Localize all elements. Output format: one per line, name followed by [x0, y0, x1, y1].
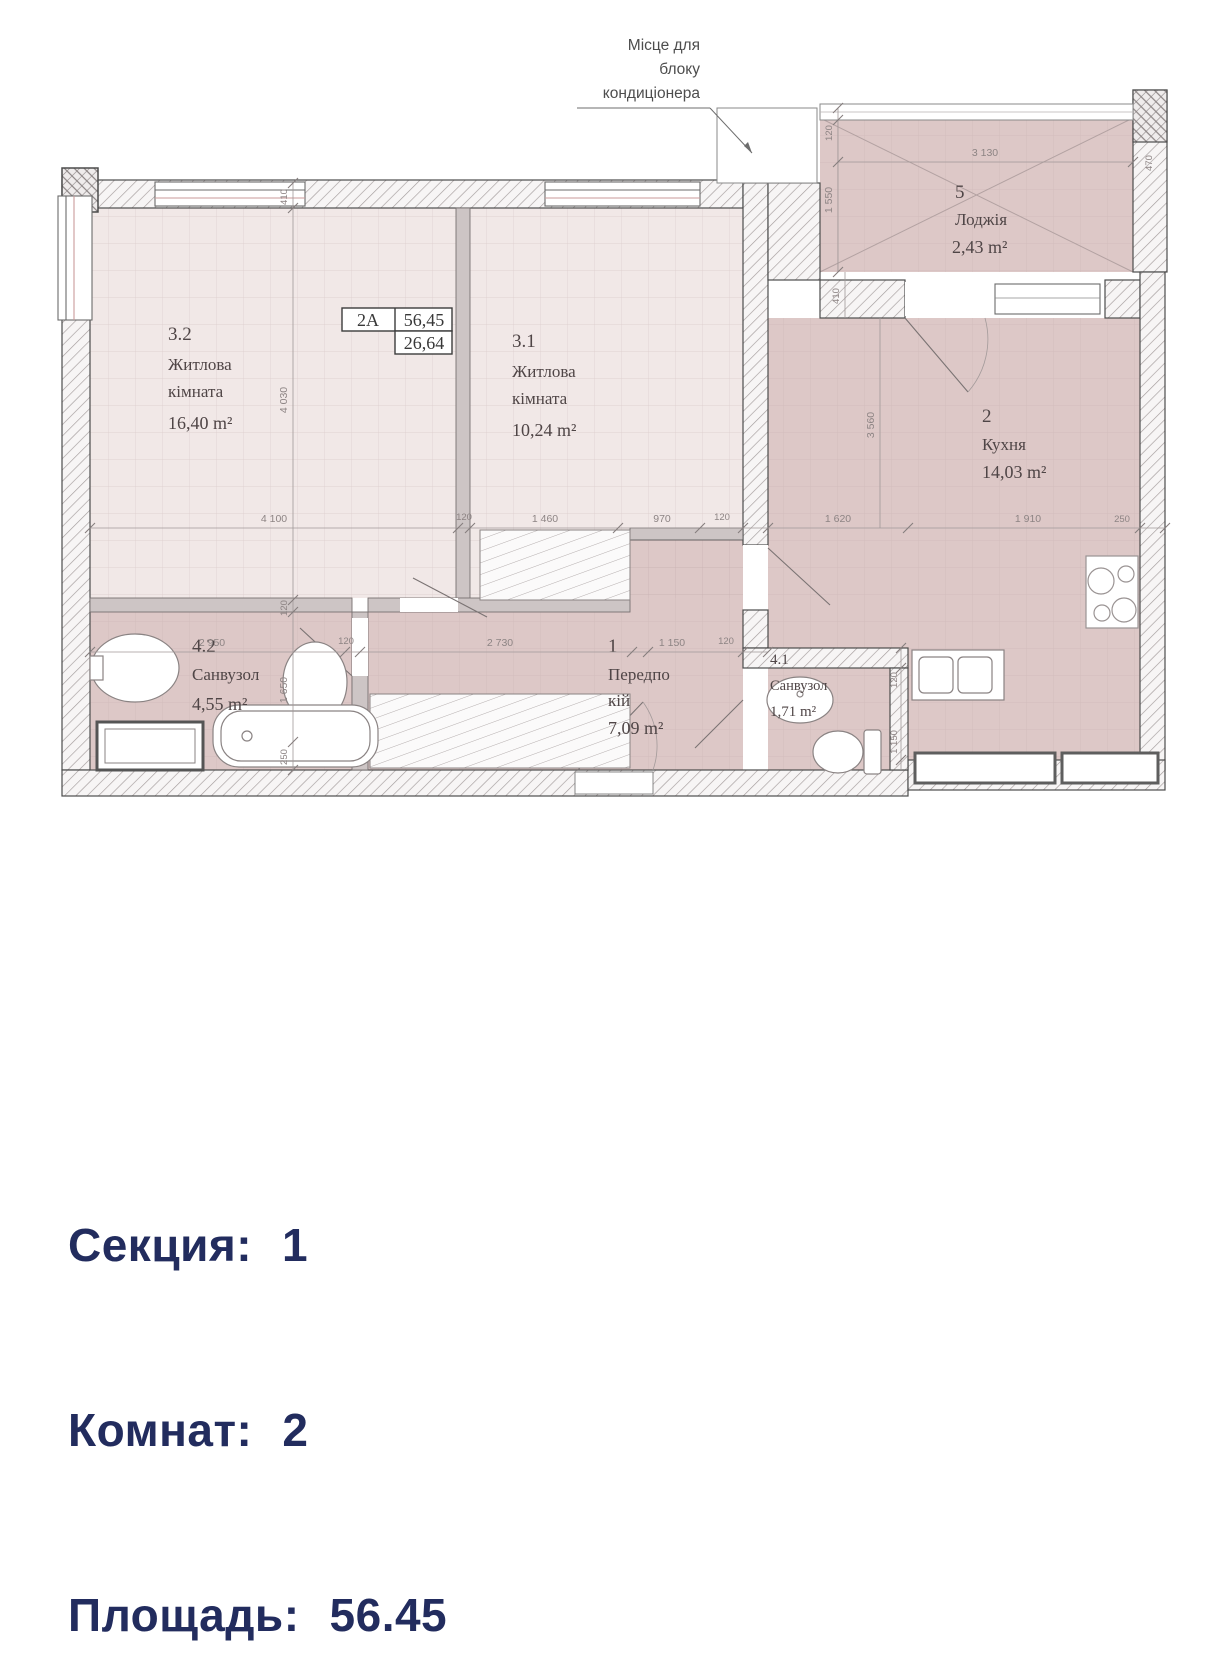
wall-loggia-kitchen-right: [1105, 280, 1140, 318]
room-id: 2: [982, 406, 992, 427]
info-row-rooms: Комнат: 2: [68, 1403, 308, 1457]
rooms-label: Комнат:: [68, 1403, 252, 1457]
unit-area-living: 26,64: [404, 333, 445, 353]
dim-label: 3 560: [865, 412, 877, 438]
room-id: 1: [608, 636, 618, 657]
dim-label: 1 150: [659, 637, 685, 649]
dim-label: 410: [279, 189, 290, 205]
kitchen-sink-bowl: [919, 657, 953, 693]
room-name: Кухня: [982, 435, 1026, 454]
room-area: 2,43 m²: [952, 237, 1007, 257]
room-id: 5: [955, 182, 965, 203]
page: Місце для блоку кондиціонера: [0, 0, 1206, 1656]
closet-room-31: [480, 530, 630, 600]
room-name: кімната: [512, 389, 568, 408]
stove-burner: [1118, 566, 1134, 582]
door-opening-32: [400, 598, 458, 612]
balcony-door-opening: [905, 282, 985, 316]
ac-note-line: Місце для: [628, 37, 700, 54]
wall-31-kitchen-low: [743, 610, 768, 648]
dim-label: 120: [824, 125, 835, 141]
dim-label: 250: [1114, 514, 1130, 525]
partition-32-31: [456, 208, 470, 600]
dim-label: 4 030: [278, 387, 290, 413]
dim-label: 120: [456, 512, 472, 523]
stove-burner: [1088, 568, 1114, 594]
floor-plan: Місце для блоку кондиціонера: [0, 0, 1206, 870]
dim-label: 1 620: [825, 513, 851, 525]
kitchen-sink-bowl: [958, 657, 992, 693]
kitchen-loggia-window: [995, 284, 1100, 314]
dim-label: 1 650: [278, 677, 290, 703]
room-id: 4.1: [770, 652, 789, 668]
rooms-value: 2: [282, 1403, 308, 1457]
sink-42: [91, 634, 179, 702]
room-name: кімната: [168, 382, 224, 401]
dim-label: 120: [889, 672, 900, 688]
ac-niche-group: Місце для блоку кондиціонера: [577, 37, 817, 183]
room-name: кій: [608, 691, 630, 710]
stove-burner: [1094, 605, 1110, 621]
dim-label: 1 150: [889, 730, 900, 754]
door-opening-41: [743, 690, 768, 745]
unit-code: 2А: [357, 310, 379, 330]
room-area: 7,09 m²: [608, 718, 663, 738]
window-left-wall: [58, 196, 92, 320]
room-id: 3.2: [168, 324, 192, 345]
room-area: 14,03 m²: [982, 462, 1046, 482]
dim-label: 120: [718, 636, 734, 647]
corner-block-topright: [1133, 90, 1167, 142]
dim-label: 3 130: [972, 147, 998, 159]
wall-31-kitchen: [743, 183, 768, 545]
room-name: Санвузол: [770, 678, 827, 694]
room-area: 10,24 m²: [512, 420, 576, 440]
stove-burner: [1112, 598, 1136, 622]
bottom-wall: [62, 770, 908, 796]
section-label: Секция:: [68, 1218, 252, 1272]
wall-32-42: [90, 598, 352, 612]
wall-kitchen-top-left: [768, 183, 820, 280]
ac-niche: [717, 108, 817, 183]
kitchen-window-1: [915, 753, 1055, 783]
grid-overlay: [90, 208, 456, 598]
bathroom-41-top-wall: [743, 648, 908, 668]
room-area: 4,55 m²: [192, 694, 247, 714]
room-area: 1,71 m²: [770, 704, 817, 720]
ac-note-line: блоку: [659, 61, 700, 78]
window-room-31: [545, 182, 700, 206]
wall-31-corridor: [630, 528, 743, 540]
dim-label: 120: [714, 512, 730, 523]
washing-machine-inner: [105, 729, 195, 763]
entrance-door-opening: [575, 772, 653, 794]
dim-label: 120: [338, 636, 354, 647]
ac-note-line: кондиціонера: [603, 85, 701, 102]
room-name: Житлова: [512, 362, 576, 381]
dim-label: 1 460: [532, 513, 558, 525]
area-value: 56.45: [330, 1588, 448, 1642]
info-row-section: Секция: 1: [68, 1218, 308, 1272]
dim-label: 970: [653, 513, 671, 525]
room-name: Передпо: [608, 665, 670, 684]
kitchen-window-2: [1062, 753, 1158, 783]
bathtub-drain: [242, 731, 252, 741]
room-name: Санвузол: [192, 665, 260, 684]
section-value: 1: [282, 1218, 308, 1272]
dim-label: 470: [1144, 155, 1155, 171]
sink-42-faucet: [90, 656, 103, 680]
door-opening-42: [352, 618, 368, 676]
dim-label: 4 100: [261, 513, 287, 525]
room-area: 16,40 m²: [168, 413, 232, 433]
dim-label: 2 950: [199, 637, 225, 649]
right-wall-kitchen: [1140, 272, 1165, 770]
dim-label: 410: [831, 288, 842, 304]
area-label: Площадь:: [68, 1588, 300, 1642]
info-row-area: Площадь: 56.45: [68, 1588, 447, 1642]
dim-label: 1 910: [1015, 513, 1041, 525]
room-id: 3.1: [512, 331, 536, 352]
toilet-41-tank: [864, 730, 881, 774]
wardrobe-hall: [370, 694, 630, 768]
dim-label: 120: [279, 600, 290, 616]
unit-area-total: 56,45: [404, 310, 445, 330]
toilet-41-bowl: [813, 731, 863, 773]
door-opening-kitchen: [743, 545, 768, 607]
dim-label: 1 550: [823, 187, 835, 213]
room-name: Житлова: [168, 355, 232, 374]
dim-label: 2 730: [487, 637, 513, 649]
room-name: Лоджія: [955, 210, 1007, 229]
dim-label: 250: [279, 749, 290, 765]
